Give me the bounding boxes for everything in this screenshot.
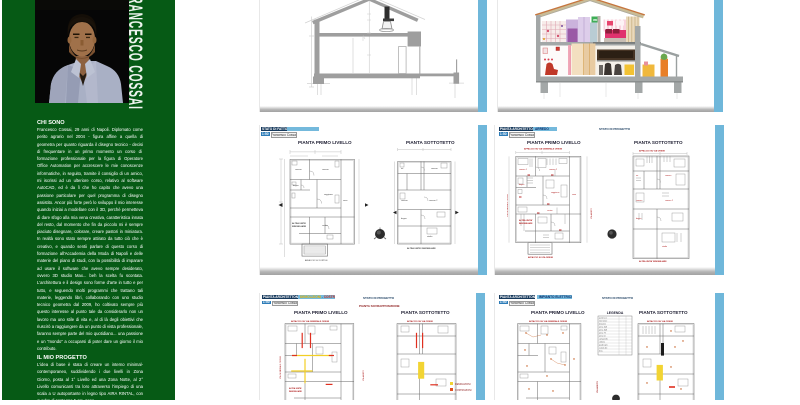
svg-text:VIA GENERALE ORSINI: VIA GENERALE ORSINI (507, 194, 509, 217)
svg-text:citofono: citofono (599, 341, 605, 344)
svg-text:ALTRA UNITA' IMMOBILIARE: ALTRA UNITA' IMMOBILIARE (407, 247, 436, 250)
svg-text:vano: vano (343, 200, 348, 202)
svg-text:VIA AMETO: VIA AMETO (362, 370, 365, 381)
svg-text:presa tel.: presa tel. (599, 335, 606, 338)
svg-text:COSTRUZIONI: COSTRUZIONI (455, 388, 472, 391)
svg-text:soggiorno: soggiorno (551, 191, 559, 194)
svg-text:IMMOBILIARE: IMMOBILIARE (519, 222, 533, 225)
svg-text:presa 10A: presa 10A (599, 326, 608, 329)
svg-text:quadro gen.: quadro gen. (599, 344, 609, 347)
svg-text:camera: camera (636, 199, 643, 202)
svg-text:linea: linea (599, 351, 603, 353)
svg-text:camera 2: camera 2 (429, 200, 438, 202)
svg-text:presa TV: presa TV (599, 332, 607, 335)
svg-text:LEGENDA: LEGENDA (607, 311, 624, 315)
svg-text:ALTRA UNITA' IMMOBILIARE: ALTRA UNITA' IMMOBILIARE (639, 260, 667, 263)
svg-text:camera: camera (431, 168, 439, 170)
svg-text:AFFACCIO SU CORTILE: AFFACCIO SU CORTILE (305, 259, 328, 262)
svg-text:camera: camera (322, 169, 330, 171)
svg-text:cucina: cucina (322, 225, 329, 227)
svg-text:AFFACCIO SU VIA ORSINI: AFFACCIO SU VIA ORSINI (407, 320, 433, 323)
svg-text:bagno: bagno (401, 218, 407, 220)
svg-text:vano: vano (572, 194, 576, 196)
svg-text:camera: camera (295, 169, 303, 171)
svg-text:bagno: bagno (636, 218, 641, 220)
svg-text:VIA GENERALE ORSINI: VIA GENERALE ORSINI (279, 356, 282, 379)
svg-text:VIA GENERALE ORSINI: VIA GENERALE ORSINI (513, 360, 514, 383)
svg-text:studio: studio (427, 235, 433, 238)
svg-text:studio: studio (662, 245, 667, 248)
svg-text:ALTRA UNITA': ALTRA UNITA' (289, 387, 302, 390)
svg-text:AFFACCIO SU VIA GENERALE ORSIN: AFFACCIO SU VIA GENERALE ORSINI (291, 320, 329, 323)
svg-text:ALTRA UNITA': ALTRA UNITA' (519, 219, 533, 222)
svg-text:camera: camera (401, 200, 409, 202)
svg-text:IMMOBILIARE: IMMOBILIARE (292, 225, 307, 228)
svg-text:AFFACCIO SU VIA ORSINI: AFFACCIO SU VIA ORSINI (639, 150, 665, 153)
svg-text:AFFACCIO SU VIA ORSINI: AFFACCIO SU VIA ORSINI (647, 320, 673, 323)
svg-text:campanello: campanello (599, 339, 608, 341)
svg-text:camera 2: camera 2 (549, 168, 557, 171)
svg-text:scatola der.: scatola der. (599, 347, 608, 350)
svg-text:camera 2: camera 2 (665, 199, 673, 202)
svg-text:AFFACCIO SU VIA GENERALE ORSIN: AFFACCIO SU VIA GENERALE ORSINI (524, 148, 562, 151)
svg-text:camera 1: camera 1 (519, 168, 527, 171)
svg-text:interruttore: interruttore (599, 320, 607, 323)
svg-text:AFFACCIO SU VIA GENERALE ORSIN: AFFACCIO SU VIA GENERALE ORSINI (529, 320, 567, 323)
svg-text:deviatore: deviatore (599, 323, 606, 326)
svg-text:wc: wc (592, 18, 597, 22)
svg-text:AFFACCIO SU VIA ORSINI: AFFACCIO SU VIA ORSINI (528, 256, 553, 259)
svg-text:IMMOBILIARE: IMMOBILIARE (289, 390, 302, 393)
svg-text:punto luce: punto luce (599, 317, 607, 320)
svg-text:soggiorno: soggiorno (324, 194, 334, 196)
svg-text:presa 16A: presa 16A (599, 329, 608, 332)
svg-text:bagno: bagno (519, 184, 524, 186)
svg-text:wc: wc (636, 175, 638, 177)
svg-text:wc: wc (401, 168, 403, 170)
svg-text:VIA AMETO: VIA AMETO (590, 208, 593, 219)
svg-text:DEMOLIZIONI: DEMOLIZIONI (455, 382, 471, 385)
svg-text:ALTRA UNITA': ALTRA UNITA' (292, 222, 307, 225)
svg-text:camera: camera (665, 174, 672, 177)
svg-text:bagno: bagno (293, 185, 299, 187)
svg-text:cucina: cucina (547, 210, 553, 212)
